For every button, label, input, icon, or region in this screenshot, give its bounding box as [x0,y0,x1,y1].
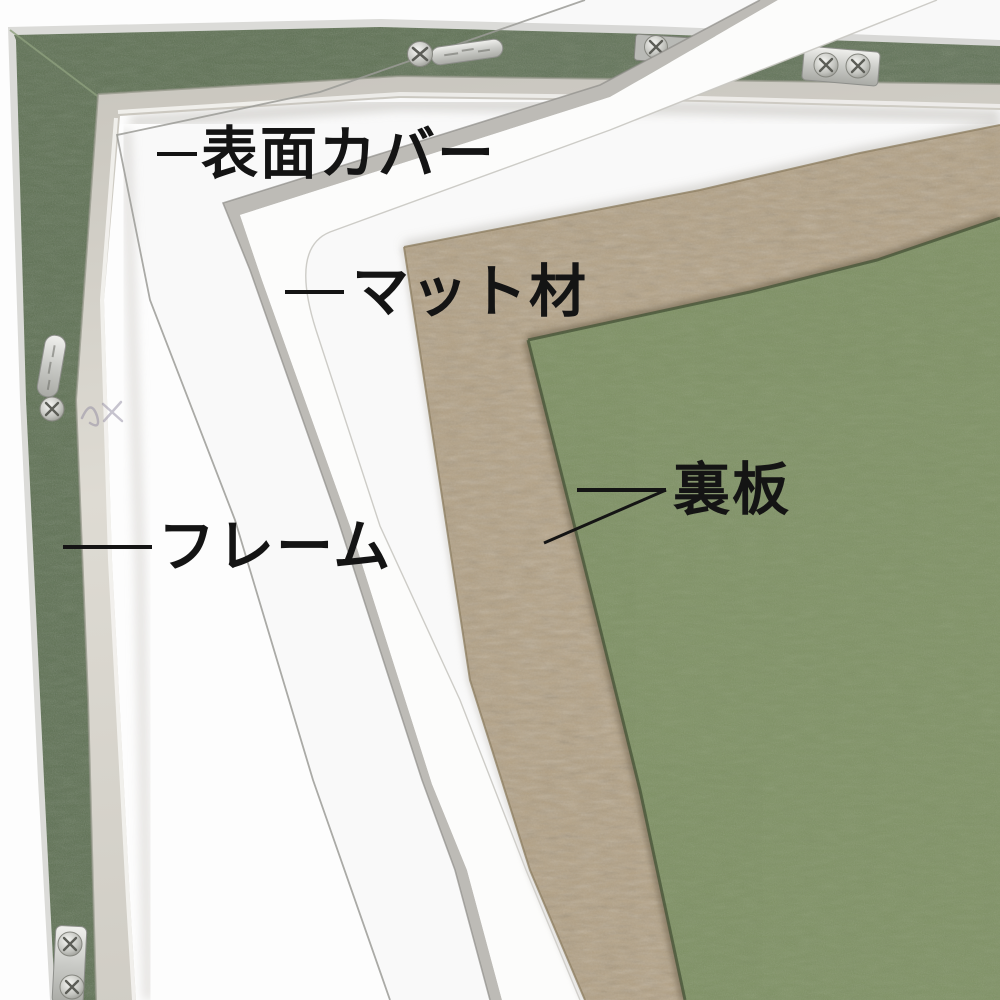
label-mat: マット材 [352,260,588,324]
screw-top-right-1 [814,53,838,77]
label-frame: フレーム [158,515,392,579]
screw-left [40,397,64,421]
screw-top-1 [408,42,433,67]
screw-top-right-2 [846,54,870,78]
label-surface-cover: 表面カバー [201,122,496,186]
label-back-board: 裏板 [673,458,791,522]
screw-bottom-1 [58,932,82,956]
screw-bottom-2 [60,975,84,999]
frame-parts-photo: 表面カバー マット材 フレーム 裏板 [0,0,1000,1000]
